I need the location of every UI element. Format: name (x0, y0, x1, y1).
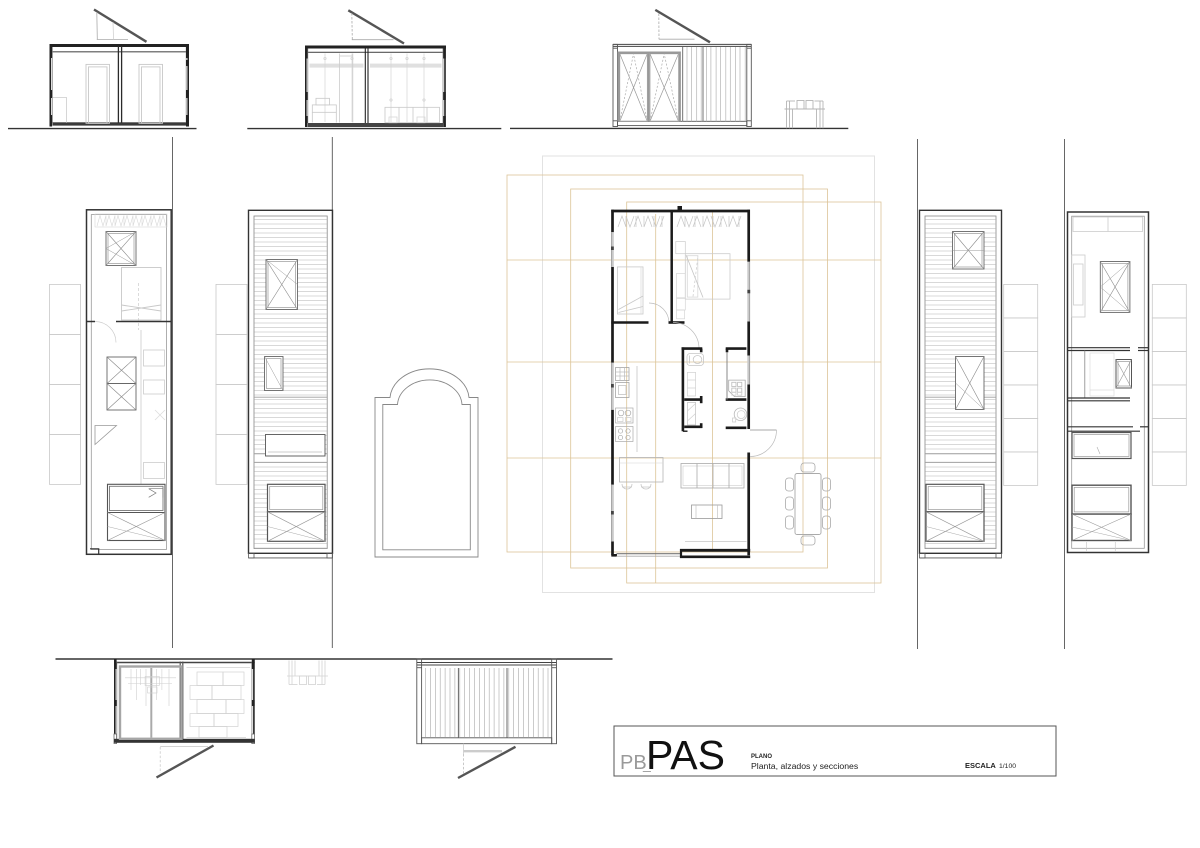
svg-text:PAS: PAS (646, 732, 725, 778)
svg-text:1/100: 1/100 (999, 763, 1016, 770)
svg-text:ESCALA: ESCALA (965, 761, 996, 770)
svg-text:Planta, alzados y secciones: Planta, alzados y secciones (751, 761, 859, 771)
svg-text:PLANO: PLANO (751, 754, 772, 760)
